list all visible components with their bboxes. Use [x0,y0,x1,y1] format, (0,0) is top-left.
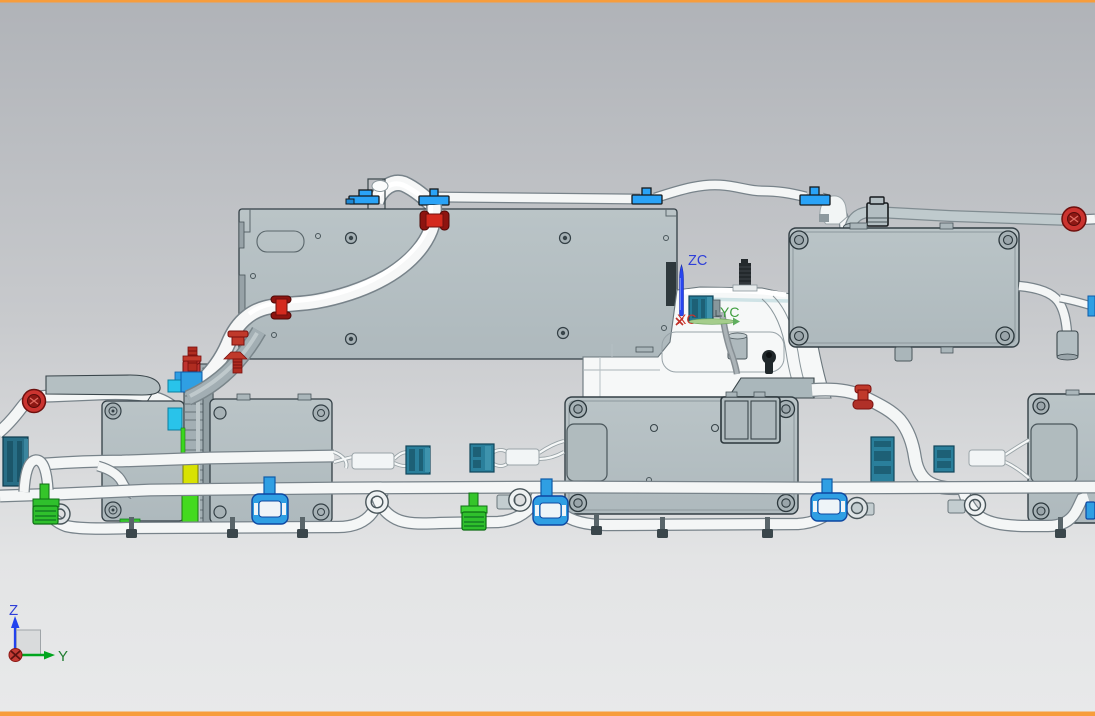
svg-text:Y: Y [58,648,68,665]
svg-text:Z: Z [9,602,18,619]
svg-text:ZC: ZC [688,253,707,269]
svg-text:YC: YC [720,304,739,320]
svg-text:XC: XC [677,311,696,327]
